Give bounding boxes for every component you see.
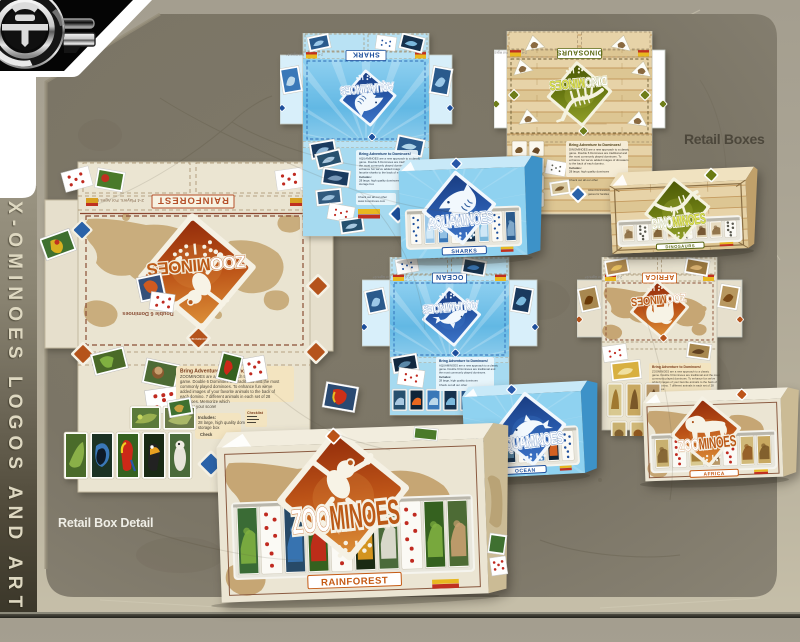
svg-text:RAINFOREST: RAINFOREST bbox=[321, 575, 389, 588]
svg-text:ZOOMINOES: ZOOMINOES bbox=[189, 337, 207, 341]
svg-text:SHARKS: SHARKS bbox=[451, 248, 477, 255]
svg-text:DINOSAURS: DINOSAURS bbox=[556, 49, 603, 56]
svg-text:AFRICA: AFRICA bbox=[703, 471, 724, 478]
svg-text:2-4 Players. For Ages 6+: 2-4 Players. For Ages 6+ bbox=[286, 53, 323, 57]
svg-text:SHARK: SHARK bbox=[352, 51, 379, 58]
